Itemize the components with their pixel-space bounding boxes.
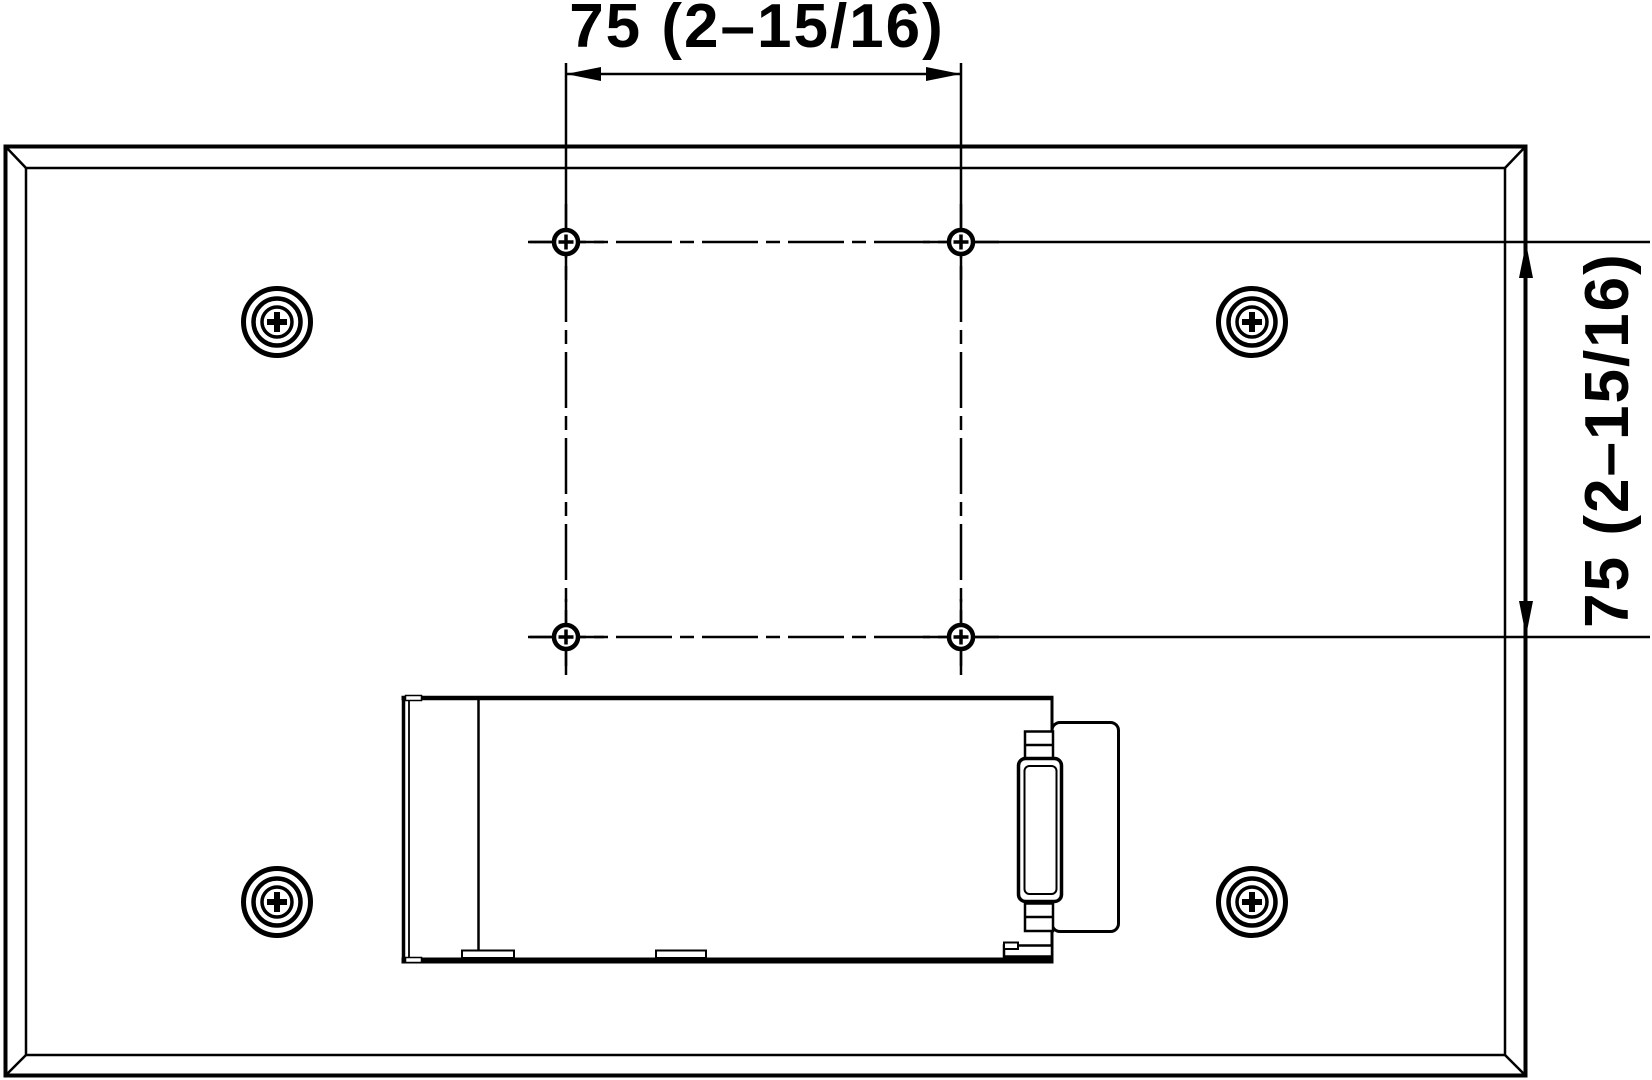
vesa-mounting-holes [528, 204, 999, 675]
vesa-hole-bottom-left [528, 599, 604, 675]
corner-screw-bottom-right [1219, 869, 1286, 936]
rear-view-technical-drawing: 75 (2–15/16) 75 (2–15/16) [0, 0, 1652, 1080]
chamfer-top-left [6, 147, 27, 169]
drawing-canvas: 75 (2–15/16) 75 (2–15/16) [0, 0, 1652, 1080]
bottom-slot-right [656, 951, 706, 959]
chamfer-bottom-left [6, 1055, 27, 1076]
vesa-hole-top-right [923, 204, 999, 280]
dimension-label-horizontal: 75 (2–15/16) [569, 0, 945, 61]
dimension-vertical: 75 (2–15/16) [1519, 243, 1642, 636]
arrowhead-left-icon [566, 67, 601, 81]
corner-notch-top [406, 696, 422, 701]
vesa-hole-bottom-right [923, 599, 999, 675]
device-outline [6, 147, 1526, 1076]
center-lines [530, 63, 1650, 668]
mount-step-notch [1004, 943, 1018, 950]
stand-mount-assembly [402, 696, 1119, 964]
corner-screw-top-left [244, 289, 311, 356]
chamfer-bottom-right [1505, 1055, 1526, 1076]
corner-screw-bottom-left [244, 869, 311, 936]
jack-post-bottom [1025, 904, 1053, 932]
corner-screw-top-right [1219, 289, 1286, 356]
arrowhead-right-icon [926, 67, 961, 81]
panel-outer-edge [6, 147, 1526, 1076]
corner-screws [244, 289, 1286, 936]
bottom-slot-left [462, 951, 514, 959]
jack-post-top [1025, 732, 1053, 759]
dimension-horizontal: 75 (2–15/16) [566, 0, 961, 81]
dimension-label-vertical: 75 (2–15/16) [1573, 252, 1642, 628]
corner-notch-bottom [406, 958, 422, 963]
vesa-hole-top-left [528, 204, 604, 280]
chamfer-top-right [1505, 147, 1526, 169]
